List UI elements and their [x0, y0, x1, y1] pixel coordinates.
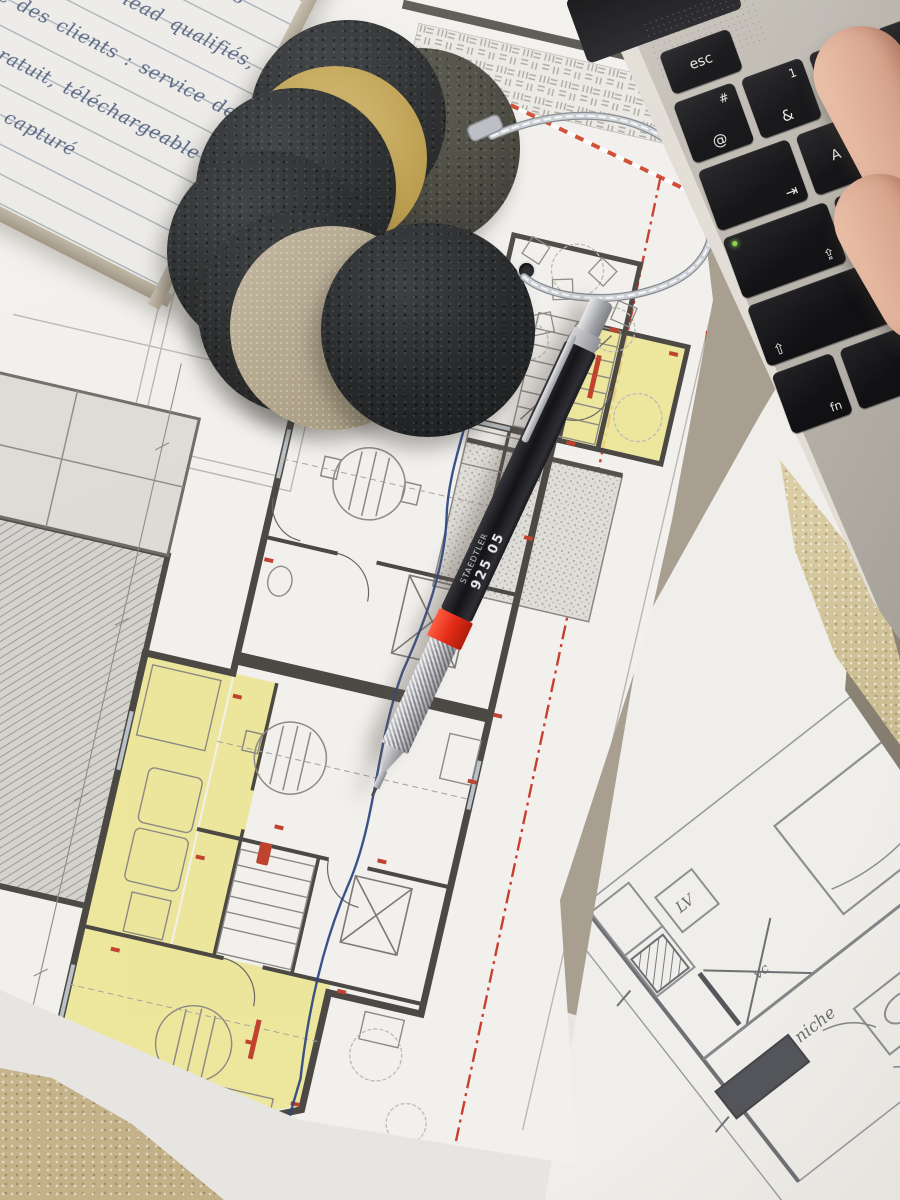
shift-icon: ⇧ — [770, 339, 788, 360]
photo-desk-scene: niche LV vc arr — [0, 0, 900, 1200]
cable-crimp — [466, 114, 504, 142]
key-label: 1 — [787, 65, 799, 81]
pencil-lead — [370, 787, 377, 796]
key-label: & — [754, 96, 820, 135]
key-label: esc — [687, 50, 715, 73]
key-1-ampersand: 1 & — [740, 57, 822, 139]
key-label: fn — [828, 398, 844, 415]
pencil-lead-sleeve — [372, 769, 386, 789]
tab-icon: ⇥ — [783, 181, 801, 202]
key-label: A — [829, 146, 843, 164]
key-label: # — [717, 90, 731, 107]
key-label: @ — [687, 121, 753, 160]
caps-lock-icon: ⇪ — [820, 244, 838, 265]
caps-lock-led — [732, 240, 738, 246]
